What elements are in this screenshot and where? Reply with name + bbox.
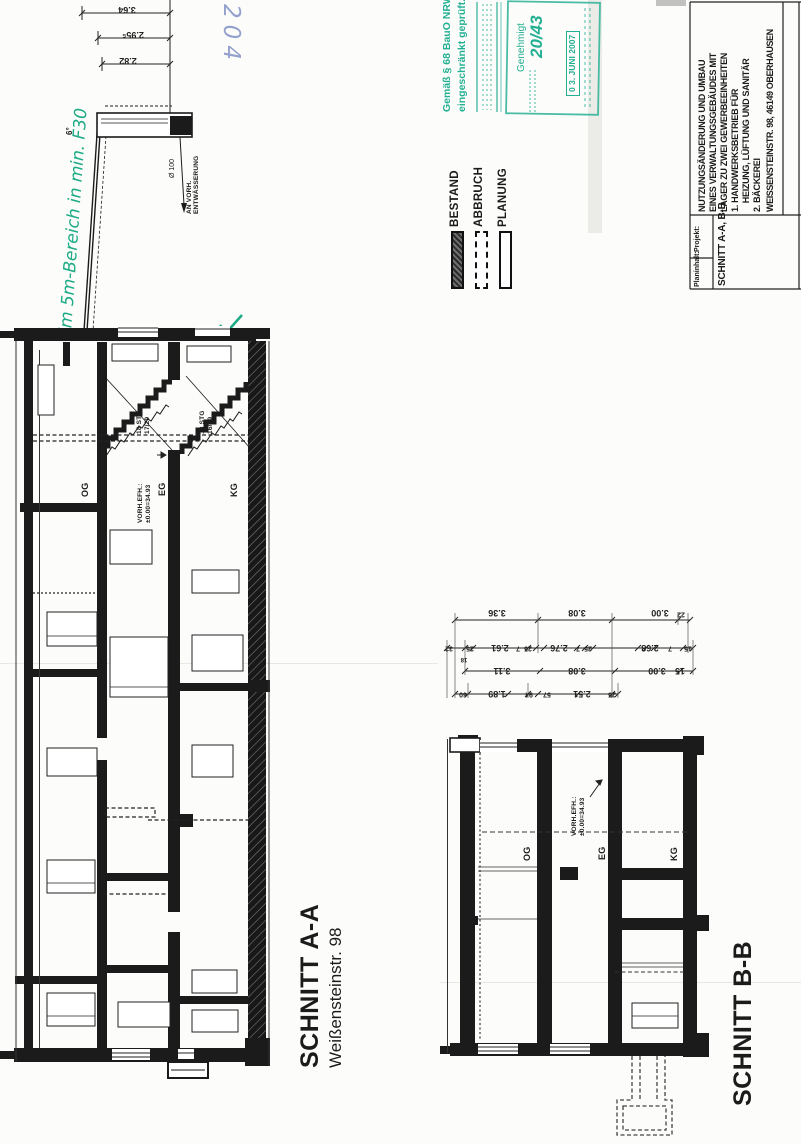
dim-value: 2.76	[550, 643, 568, 653]
stamp-genehmigt-label: Genehmigt	[516, 23, 527, 72]
dim-value: 25	[584, 645, 592, 652]
project-line: LAGER ZU ZWEI GEWERBEEINHEITEN	[719, 53, 729, 212]
dim-value: 2.51	[573, 689, 591, 699]
dim-value: 3.11	[493, 666, 510, 676]
legend-label-abbruch: ABBRUCH	[473, 167, 486, 227]
dim-value: 60	[459, 691, 467, 698]
project-line: 2. BÄCKEREI	[752, 158, 762, 212]
project-line: EINES VERWALTUNGSGEBÄUDES MIT	[708, 53, 718, 212]
dim-value: 3.00	[648, 666, 666, 676]
stair1-label-line1: 18 STG	[136, 410, 143, 434]
project-line: 1. HANDWERKSBETRIEB FÜR	[730, 89, 740, 212]
legend-swatch-abbruch	[475, 231, 488, 289]
section-aa-subtitle: Weißensteinstr. 98	[326, 928, 345, 1068]
legend-swatch-bestand	[451, 231, 464, 289]
dim-value: 7	[516, 645, 520, 652]
planinhalt-label: Planinhalt:	[694, 251, 702, 287]
floor-label-eg-bb: EG	[597, 846, 607, 860]
floor-label-kg-aa: KG	[229, 483, 239, 497]
legend-swatch-planung	[499, 231, 512, 289]
project-line: HEIZUNG, LÜFTUNG UND SANITÄR	[741, 59, 751, 212]
dim-value: 94	[525, 691, 533, 698]
dim-value: 25	[524, 645, 532, 652]
legend-label-planung: PLANUNG	[497, 168, 510, 227]
handwritten-blue-number: 204	[218, 4, 244, 66]
legend-label-bestand: BESTAND	[449, 170, 462, 227]
projekt-label: Projekt:	[694, 226, 702, 252]
scanned-plan-sheet: 3.64 2.95⁵ 2.82 6° Ø 100 AN VORH. ENTWÄS…	[0, 0, 801, 1144]
dim-value: 2.82	[119, 56, 137, 66]
dim-value: 2.61	[491, 643, 509, 653]
stair2-label-line1: 18 STG	[199, 410, 206, 434]
dim-value: 22	[677, 611, 685, 618]
section-aa-title: SCHNITT A-A	[296, 904, 324, 1068]
dim-value: 3.08	[568, 666, 586, 676]
scan-smudge	[656, 0, 686, 6]
dim-value: 25	[466, 645, 474, 652]
drain-diameter-label: Ø 100	[169, 159, 177, 178]
dim-value: 3.08	[568, 608, 586, 618]
project-line: WEISSENSTEINSTR. 98, 46149 OBERHAUSEN	[765, 29, 775, 212]
stamp-genehmigt-number: 20/43	[527, 15, 546, 58]
dim-value: 2.68	[641, 643, 659, 653]
dim-value: 7	[576, 645, 580, 652]
dim-value: 25	[608, 691, 616, 698]
dim-value: 3.00	[651, 608, 669, 618]
dim-value: 15	[675, 666, 685, 676]
dim-value: 32	[445, 645, 453, 652]
stamp-date: 0 3. JUNI 2007	[566, 31, 580, 96]
level-label-aa-line1: VORH.EFH.:	[137, 483, 144, 523]
section-bb-title: SCHNITT B-B	[729, 941, 757, 1106]
project-line: NUTZUNGSÄNDERUNG UND UMBAU	[697, 60, 707, 212]
level-label-aa-line2: ±0.00=34.93	[145, 485, 152, 523]
section-aa-drawing	[0, 320, 280, 1090]
dim-value: 1.89	[488, 689, 506, 699]
dim-value: 3.36	[488, 608, 506, 618]
stair1-label-line2: 17/29	[144, 417, 151, 434]
floor-label-kg-bb: KG	[669, 847, 679, 861]
dim-value: 57	[543, 691, 551, 698]
level-label-bb-line1: VORH.EFH.:	[571, 796, 578, 836]
planinhalt-value: SCHNITT A-A, B-B	[717, 202, 728, 286]
floor-label-eg-aa: EG	[157, 482, 167, 496]
dim-value: 3.64	[118, 5, 136, 15]
drain-note-line2: ENTWÄSSERUNG	[193, 156, 200, 214]
level-label-bb-line2: ±0.00=34.93	[579, 798, 586, 836]
dim-value: 2.95⁵	[122, 30, 144, 40]
stair2-label-line2: 16/29	[207, 417, 214, 434]
floor-label-og-aa: OG	[80, 482, 90, 497]
dim-value: 18	[461, 656, 468, 662]
dim-value: 7	[668, 645, 672, 652]
floor-label-og-bb: OG	[522, 846, 532, 861]
dim-value: 15	[684, 645, 692, 652]
